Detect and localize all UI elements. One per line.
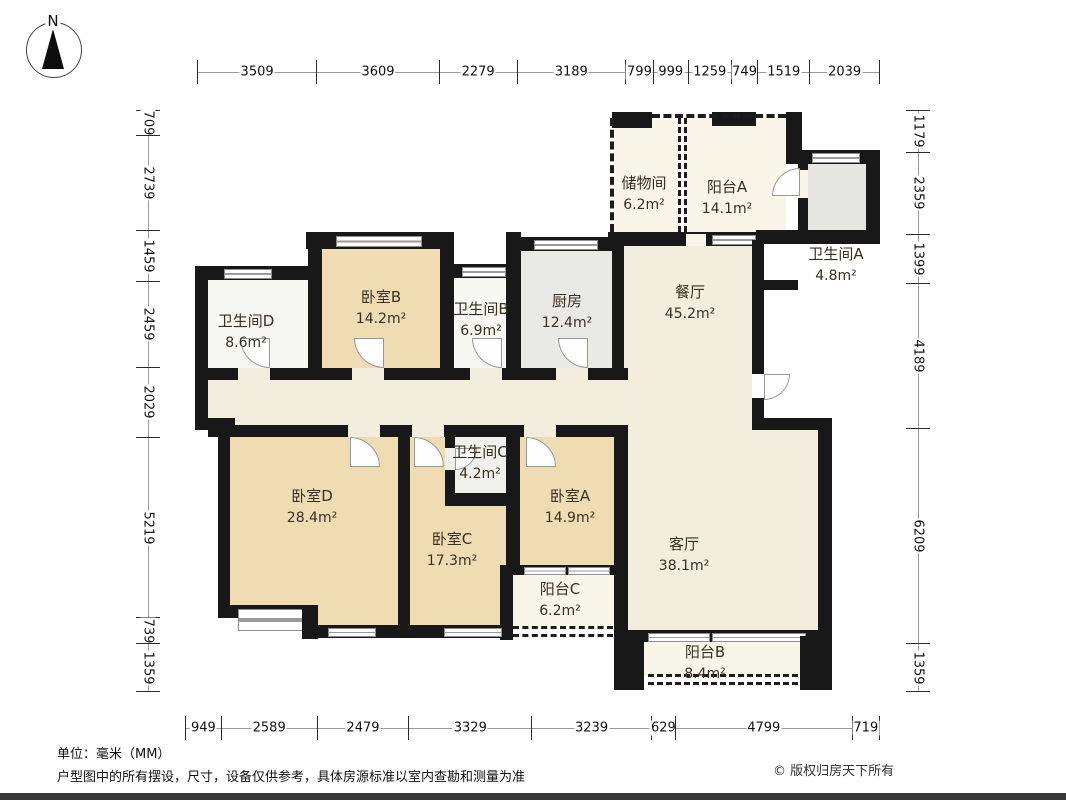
door-arc: [764, 374, 790, 400]
room-fill-bath-a: [808, 164, 866, 230]
north-arrow-icon: [42, 29, 64, 69]
dim-segment: 739: [136, 617, 160, 643]
dim-segment: 1399: [906, 234, 930, 283]
ruler-top: 3509 3609 2279 3189 799 999 1259 749 151…: [197, 60, 880, 84]
wall: [752, 240, 764, 430]
wall: [398, 425, 410, 637]
open-boundary-dashed: [610, 118, 614, 232]
wall: [756, 230, 880, 244]
window: [568, 567, 610, 575]
window: [712, 235, 756, 245]
room-label-kitchen: 厨房12.4m²: [542, 290, 592, 334]
door-opening: [412, 425, 444, 437]
dim-segment: 3329: [408, 716, 531, 740]
room-label-dining: 餐厅45.2m²: [665, 281, 715, 325]
dim-segment: 749: [731, 60, 757, 84]
wall: [506, 425, 520, 567]
dim-segment: 799: [625, 60, 653, 84]
ruler-left: 709 2739 1459 2459 2029 5219 739 1359: [136, 110, 160, 692]
room-label-balcony-b: 阳台B8.4m²: [684, 641, 726, 685]
window: [534, 240, 598, 250]
dim-segment: 2739: [136, 135, 160, 230]
dim-segment: 2479: [317, 716, 409, 740]
disclaimer-text: 户型图中的所有摆设，尺寸，设备仅供参考，具体房源标准以室内查勘和测量为准: [57, 766, 525, 785]
room-label-bed-c: 卧室C17.3m²: [427, 528, 477, 572]
dim-segment: 949: [185, 716, 221, 740]
room-label-bath-d: 卫生间D8.6m²: [218, 310, 275, 354]
room-label-bath-b: 卫生间B6.9m²: [453, 298, 508, 342]
dim-segment: 6209: [906, 428, 930, 643]
dim-segment: 999: [653, 60, 688, 84]
door-opening: [686, 234, 706, 246]
dim-segment: 2459: [136, 281, 160, 366]
dim-segment: 2029: [136, 367, 160, 438]
dim-segment: 629: [651, 716, 675, 740]
door-opening: [238, 368, 270, 380]
room-fill-bed-d-step: [318, 600, 398, 625]
window: [444, 628, 502, 637]
dim-segment: 1359: [906, 643, 930, 692]
open-boundary-dashed: [678, 118, 687, 232]
dim-segment: 1359: [136, 643, 160, 692]
room-label-bath-c: 卫生间C4.2m²: [452, 441, 507, 485]
window: [328, 628, 376, 637]
door-opening: [348, 425, 380, 437]
room-label-living: 客厅38.1m²: [659, 533, 709, 577]
open-boundary-dashed: [513, 626, 613, 637]
window: [336, 236, 422, 247]
wall: [800, 636, 832, 690]
wall: [798, 196, 808, 244]
room-fill-living-right: [752, 430, 818, 630]
room-label-bed-b: 卧室B14.2m²: [356, 286, 406, 330]
wall: [764, 280, 798, 290]
wall: [218, 418, 230, 618]
copyright-text: © 版权归房天下所有: [773, 760, 894, 779]
north-label: N: [45, 12, 60, 30]
dim-segment: 1459: [136, 230, 160, 281]
ruler-right: 1179 2359 1399 4189 6209 1359: [906, 110, 930, 692]
window: [812, 153, 860, 163]
dim-segment: 1519: [757, 60, 809, 84]
door-opening: [752, 374, 764, 398]
dim-segment: 719: [852, 716, 880, 740]
dim-segment: 1179: [906, 110, 930, 152]
room-label-storage: 储物间6.2m²: [621, 172, 666, 216]
wall: [752, 418, 832, 430]
window: [524, 567, 566, 575]
wall: [440, 232, 454, 372]
room-label-balcony-a: 阳台A14.1m²: [702, 176, 752, 220]
window: [712, 633, 806, 642]
dim-segment: 2279: [439, 60, 517, 84]
door-opening: [470, 368, 502, 380]
north-compass: N: [20, 12, 86, 84]
wall: [308, 232, 322, 372]
dim-segment: 3609: [316, 60, 439, 84]
dim-segment: 709: [136, 110, 160, 135]
wall: [612, 112, 652, 128]
window: [224, 269, 272, 279]
dim-segment: 2359: [906, 152, 930, 234]
room-label-balcony-c: 阳台C6.2m²: [539, 578, 581, 622]
dim-segment: 4189: [906, 283, 930, 428]
dim-segment: 2039: [809, 60, 880, 84]
wall: [195, 266, 208, 430]
dim-segment: 1259: [688, 60, 731, 84]
wall: [612, 237, 624, 372]
dim-segment: 3509: [197, 60, 316, 84]
wall: [616, 636, 644, 690]
room-label-bed-a: 卧室A14.9m²: [545, 485, 595, 529]
ruler-bottom: 949 2589 2479 3329 3239 629 4799 719: [185, 716, 880, 740]
door-opening: [556, 368, 588, 380]
wall: [818, 418, 832, 644]
room-label-bath-a: 卫生间A4.8m²: [808, 243, 863, 287]
room-label-bed-d: 卧室D28.4m²: [287, 485, 337, 529]
window: [238, 609, 306, 631]
open-boundary-dashed: [652, 114, 786, 118]
dim-segment: 2589: [221, 716, 317, 740]
window: [462, 267, 506, 277]
dim-segment: 4799: [675, 716, 852, 740]
door-opening: [524, 425, 556, 437]
room-fill-corridor: [208, 380, 625, 425]
floorplan-page: N 3509 3609 2279 3189 799 999 1259 749 1…: [0, 0, 1066, 800]
dim-segment: 3239: [531, 716, 651, 740]
dim-segment: 3189: [517, 60, 625, 84]
unit-note: 单位：毫米（MM）: [57, 743, 170, 762]
door-opening: [352, 368, 384, 380]
dim-segment: 5219: [136, 437, 160, 617]
bottom-divider-bar: [0, 793, 1066, 800]
